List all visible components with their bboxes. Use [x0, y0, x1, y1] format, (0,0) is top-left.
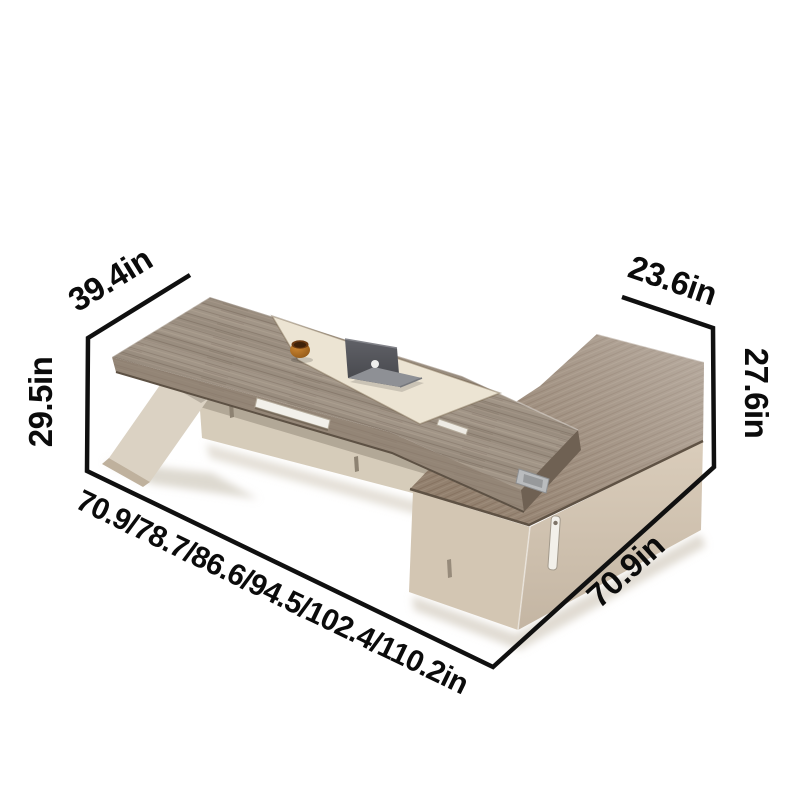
- label-return-height: 27.6in: [738, 348, 775, 439]
- product-dimension-image: 39.4in 29.5in 70.9/78.7/86.6/94.5/102.4/…: [0, 0, 800, 800]
- desk-dimension-diagram: 39.4in 29.5in 70.9/78.7/86.6/94.5/102.4/…: [0, 0, 800, 800]
- label-desk-height: 29.5in: [22, 357, 59, 448]
- label-desk-depth: 39.4in: [62, 240, 159, 319]
- cup-coffee: [294, 342, 306, 348]
- laptop-logo-dot: [371, 360, 379, 368]
- cup-shadow: [291, 357, 313, 363]
